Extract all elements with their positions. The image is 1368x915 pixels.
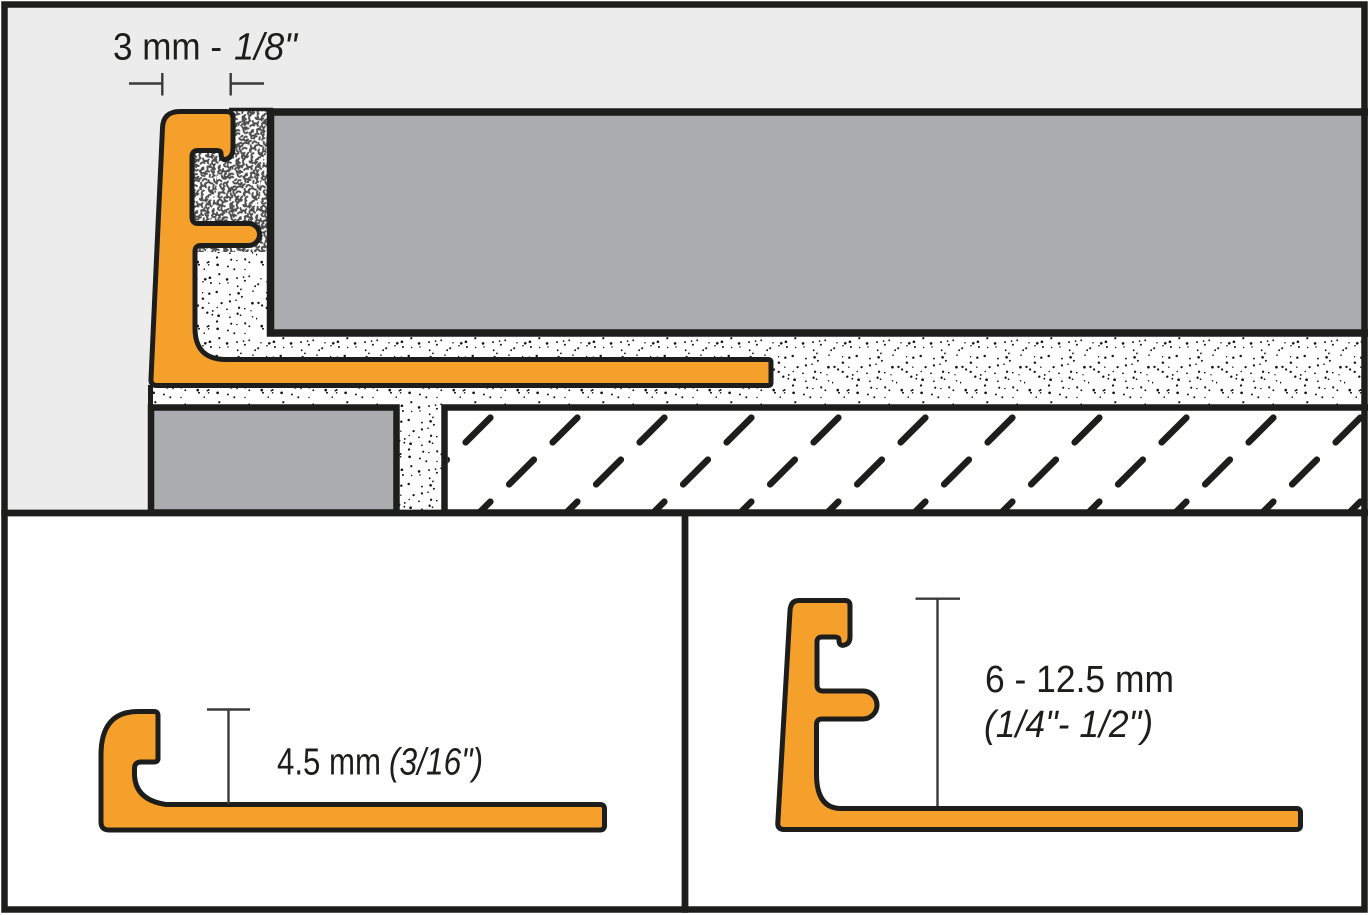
svg-text:3 mm -: 3 mm - (113, 27, 222, 69)
svg-text:(1/4"- 1/2"): (1/4"- 1/2") (984, 704, 1153, 746)
svg-text:(3/16"): (3/16") (389, 742, 483, 784)
svg-text:1/8": 1/8" (234, 27, 298, 69)
svg-text:4.5 mm: 4.5 mm (277, 742, 381, 784)
svg-text:6 - 12.5 mm: 6 - 12.5 mm (985, 659, 1174, 701)
